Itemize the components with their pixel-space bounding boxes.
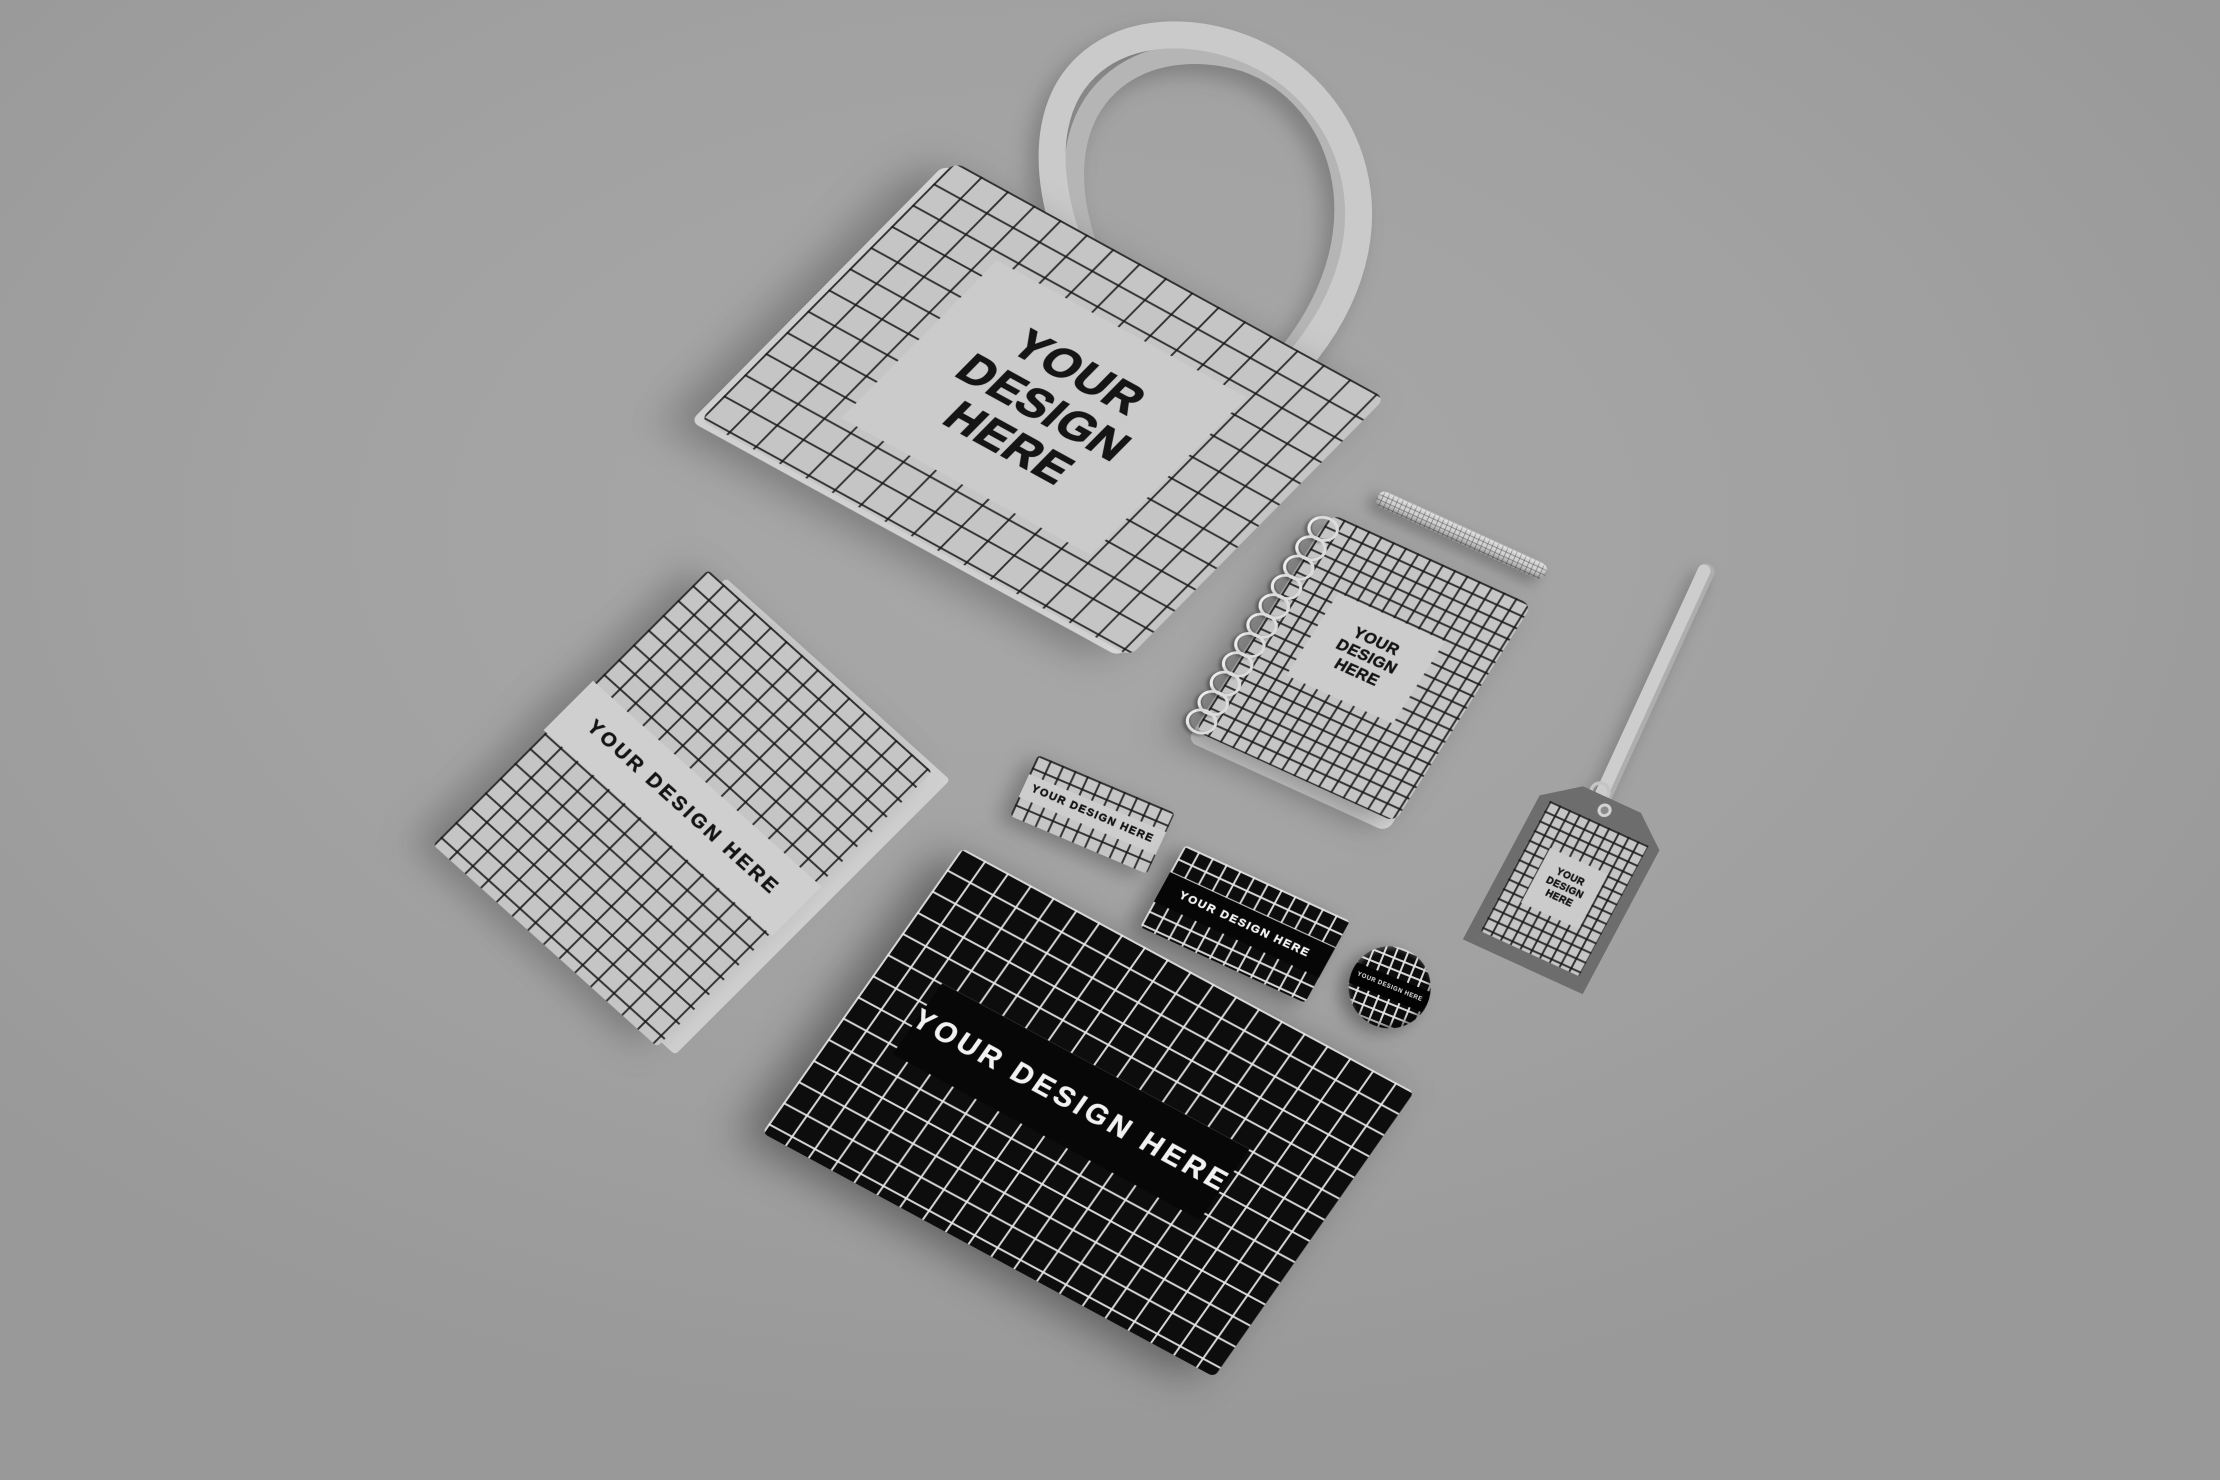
id-tag-hole: [1596, 801, 1615, 819]
mockup-scene: YOUR DESIGN HERE YOUR DESIGN HERE YOUR D…: [0, 0, 2220, 1480]
id-tag-lanyard: [0, 0, 2220, 1480]
id-tag-print-panel: YOUR DESIGN HERE: [1522, 848, 1608, 929]
id-tag-placeholder-text: YOUR DESIGN HERE: [1538, 864, 1591, 912]
id-tag-strap: [1602, 571, 1704, 793]
